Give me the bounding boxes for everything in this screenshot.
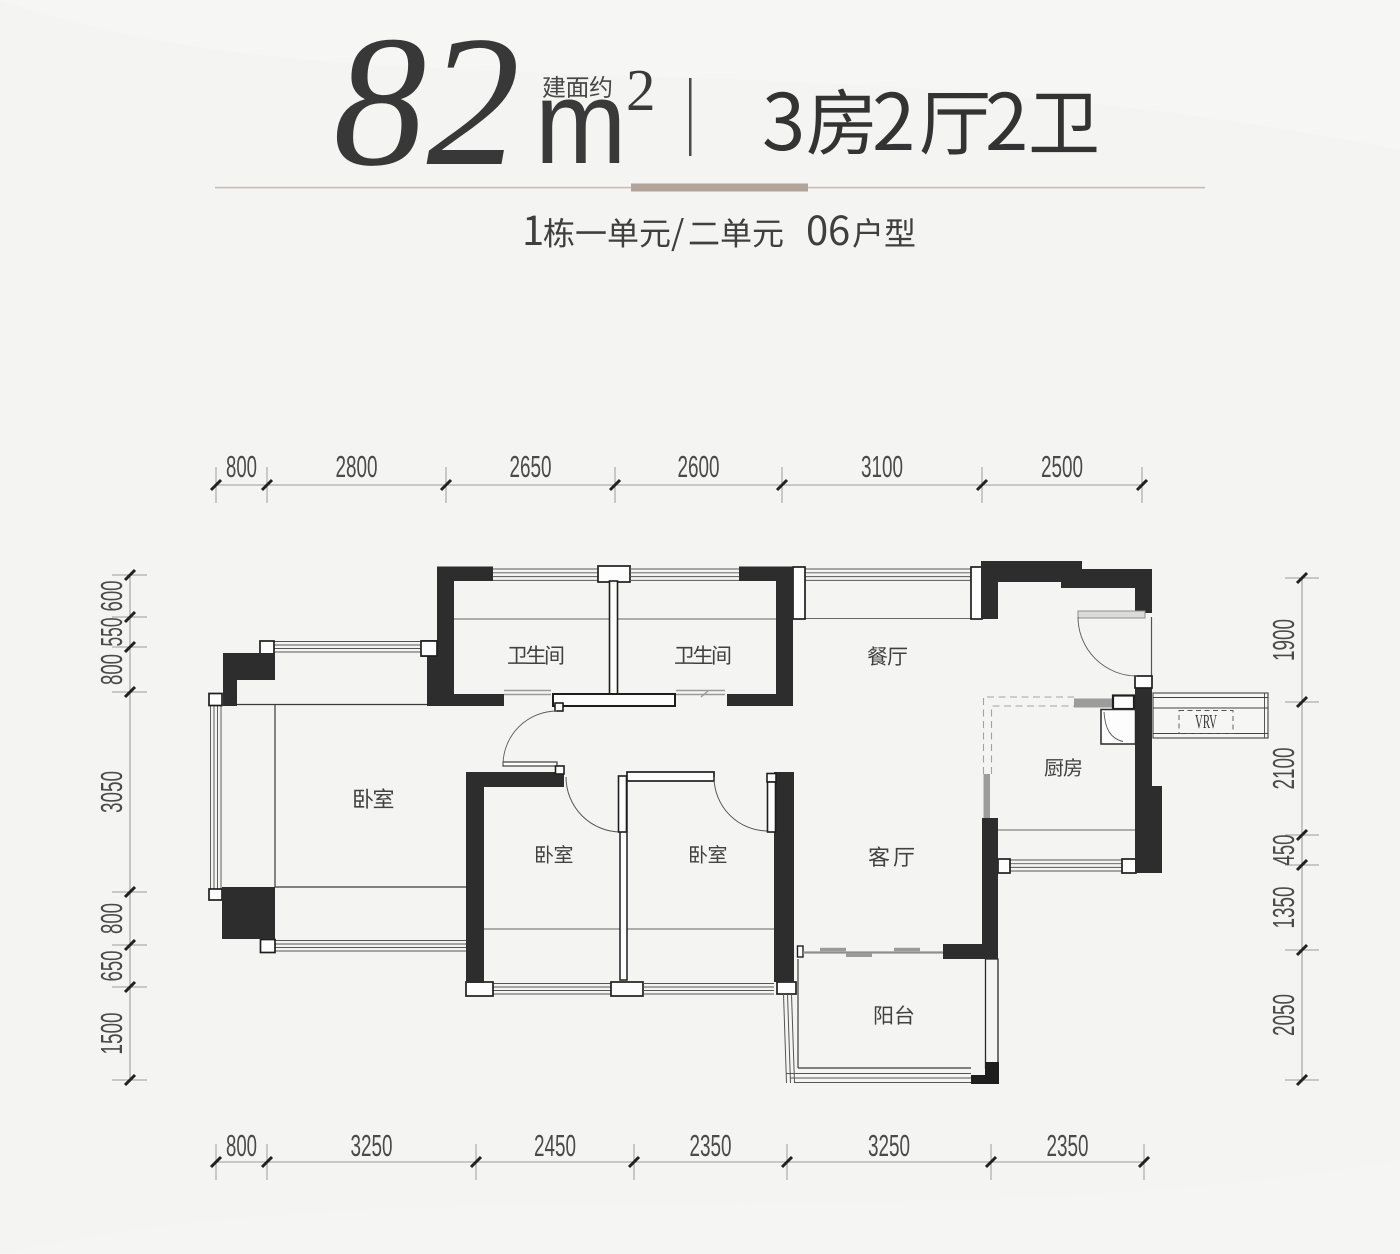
svg-text:1500: 1500 [94, 1013, 129, 1055]
svg-text:3250: 3250 [351, 1128, 393, 1163]
svg-text:550: 550 [94, 618, 129, 647]
svg-text:2350: 2350 [690, 1128, 732, 1163]
svg-text:2050: 2050 [1266, 994, 1301, 1036]
svg-text:2100: 2100 [1266, 748, 1301, 790]
svg-text:2600: 2600 [678, 449, 720, 484]
svg-text:800: 800 [226, 1128, 257, 1163]
svg-text:800: 800 [94, 903, 129, 934]
svg-text:1900: 1900 [1266, 619, 1301, 661]
svg-text:650: 650 [94, 951, 129, 982]
svg-text:450: 450 [1266, 835, 1301, 866]
svg-text:VRV: VRV [1195, 711, 1217, 733]
svg-text:82: 82 [333, 0, 520, 205]
svg-text:2500: 2500 [1041, 449, 1083, 484]
svg-text:2450: 2450 [534, 1128, 576, 1163]
svg-text:800: 800 [226, 449, 257, 484]
svg-text:3100: 3100 [861, 449, 903, 484]
svg-text:2: 2 [626, 57, 656, 123]
svg-text:3250: 3250 [868, 1128, 910, 1163]
svg-text:800: 800 [94, 654, 129, 685]
svg-text:m: m [535, 57, 626, 189]
svg-text:1350: 1350 [1266, 887, 1301, 929]
svg-text:3050: 3050 [94, 771, 129, 813]
svg-text:600: 600 [94, 581, 129, 612]
svg-text:2800: 2800 [336, 449, 378, 484]
svg-text:2350: 2350 [1047, 1128, 1089, 1163]
svg-text:2650: 2650 [510, 449, 552, 484]
